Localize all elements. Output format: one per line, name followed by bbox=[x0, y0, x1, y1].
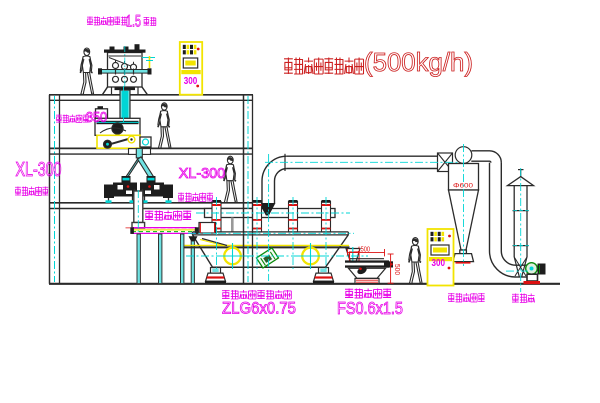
svg-text:XL-300: XL-300 bbox=[179, 165, 226, 182]
svg-text:300: 300 bbox=[184, 76, 198, 87]
svg-text:500: 500 bbox=[393, 264, 400, 275]
svg-text:300: 300 bbox=[432, 258, 446, 269]
svg-text:XL-300: XL-300 bbox=[16, 159, 62, 181]
svg-text:350: 350 bbox=[86, 109, 107, 126]
svg-text:(500kg/h): (500kg/h) bbox=[364, 47, 473, 77]
svg-text:1.5: 1.5 bbox=[126, 12, 141, 31]
svg-text:ZLG6x0.75: ZLG6x0.75 bbox=[222, 300, 296, 318]
svg-text:FS0.6x1.5: FS0.6x1.5 bbox=[337, 298, 403, 318]
svg-text:1500: 1500 bbox=[358, 247, 371, 254]
